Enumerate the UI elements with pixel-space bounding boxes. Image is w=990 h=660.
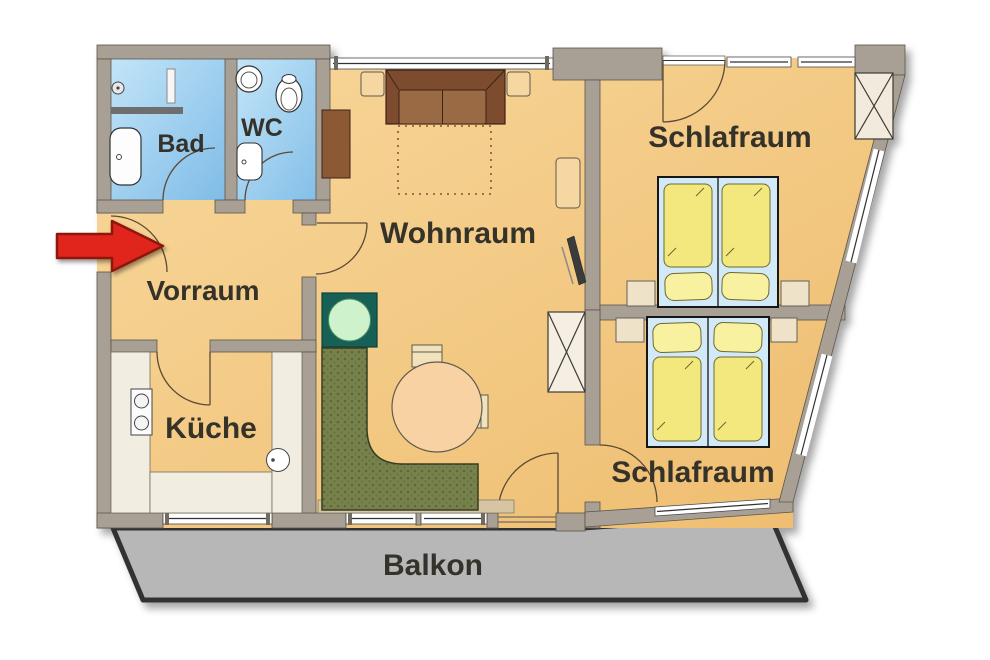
pillow: [713, 322, 762, 353]
room-label-vorraum: Vorraum: [146, 275, 259, 306]
window-schlafraum1-top-a: [727, 57, 791, 67]
sofa: [386, 70, 505, 124]
room-label-kueche: Küche: [165, 412, 257, 445]
glass-panel: [167, 69, 175, 103]
dining-table: [392, 362, 482, 452]
bathtub-basin: [110, 128, 141, 185]
building: Bad WC Vorraum Wohnraum Küche Schlafraum…: [97, 45, 905, 600]
wall-bad-bottom: [97, 200, 163, 213]
wall-bad-wc-divider: [225, 59, 237, 200]
room-label-bad: Bad: [157, 130, 204, 158]
counter-right: [272, 352, 302, 513]
wall-left-upper: [97, 59, 111, 213]
wall-kueche-top-a: [111, 340, 157, 352]
window-schlafraum1-top-b: [798, 57, 855, 67]
duvet: [722, 184, 770, 267]
duvet: [653, 357, 701, 441]
nightstand-1-right: [781, 281, 809, 306]
wall-top-right-corner: [855, 45, 905, 75]
wall-bottom-kueche-right: [272, 513, 346, 528]
wall-bottom-kueche-left: [97, 513, 163, 528]
wall-bottom-pillar: [556, 513, 585, 531]
wall-top-badwc: [97, 45, 330, 59]
window-wohnraum-top: [330, 56, 553, 70]
burner-2: [135, 416, 149, 430]
double-bed-1: [658, 177, 778, 307]
wall-wc-bottom: [293, 200, 330, 213]
toilet-lid: [282, 75, 296, 84]
counter-bottom: [150, 472, 272, 513]
room-label-wohnraum: Wohnraum: [380, 217, 536, 250]
shower-head-dot: [116, 86, 119, 89]
floor-plan-page: Bad WC Vorraum Wohnraum Küche Schlafraum…: [0, 0, 990, 660]
burner-1: [135, 394, 149, 408]
wall-top-pillar: [553, 48, 662, 80]
wall-vorraum-wohnraum-a: [302, 213, 316, 225]
duvet: [664, 184, 712, 267]
wall-kueche-wohnraum: [302, 352, 316, 528]
wall-left-lower: [97, 272, 111, 528]
pillow: [665, 272, 713, 301]
hand-basin: [237, 143, 262, 180]
wall-kueche-top-b: [210, 340, 316, 352]
wall-wohnraum-schlafraum1: [585, 80, 600, 310]
double-bed-2: [647, 317, 769, 447]
nightstand-1-left: [627, 281, 655, 306]
nightstand-2-left: [616, 318, 644, 342]
sideboard: [322, 110, 350, 178]
pillow: [722, 272, 770, 301]
room-label-schlafraum-oben: Schlafraum: [648, 121, 811, 154]
room-label-wc: WC: [241, 114, 283, 142]
floor-plan-svg: Bad WC Vorraum Wohnraum Küche Schlafraum…: [0, 0, 990, 660]
pillow: [653, 322, 702, 353]
shower-partition: [111, 107, 183, 114]
kitchen-sink-faucet: [271, 458, 275, 462]
wall-window-mullion: [416, 512, 421, 525]
plant-table: [322, 293, 377, 347]
nightstand-2-right: [771, 318, 797, 342]
room-label-balkon: Balkon: [383, 549, 483, 582]
side-table-left: [361, 72, 384, 96]
side-table-right: [507, 72, 530, 96]
door-track-schlafraum1: [663, 56, 725, 65]
room-label-schlafraum-unten: Schlafraum: [611, 456, 774, 489]
kitchen-sink-icon: [267, 449, 290, 472]
wall-wohnraum-schlafraum2-a: [585, 310, 600, 445]
cabinet: [556, 158, 580, 208]
wall-bottom-stub: [487, 513, 498, 528]
duvet: [714, 357, 762, 441]
wall-badwc-bottom-mid: [215, 200, 245, 213]
